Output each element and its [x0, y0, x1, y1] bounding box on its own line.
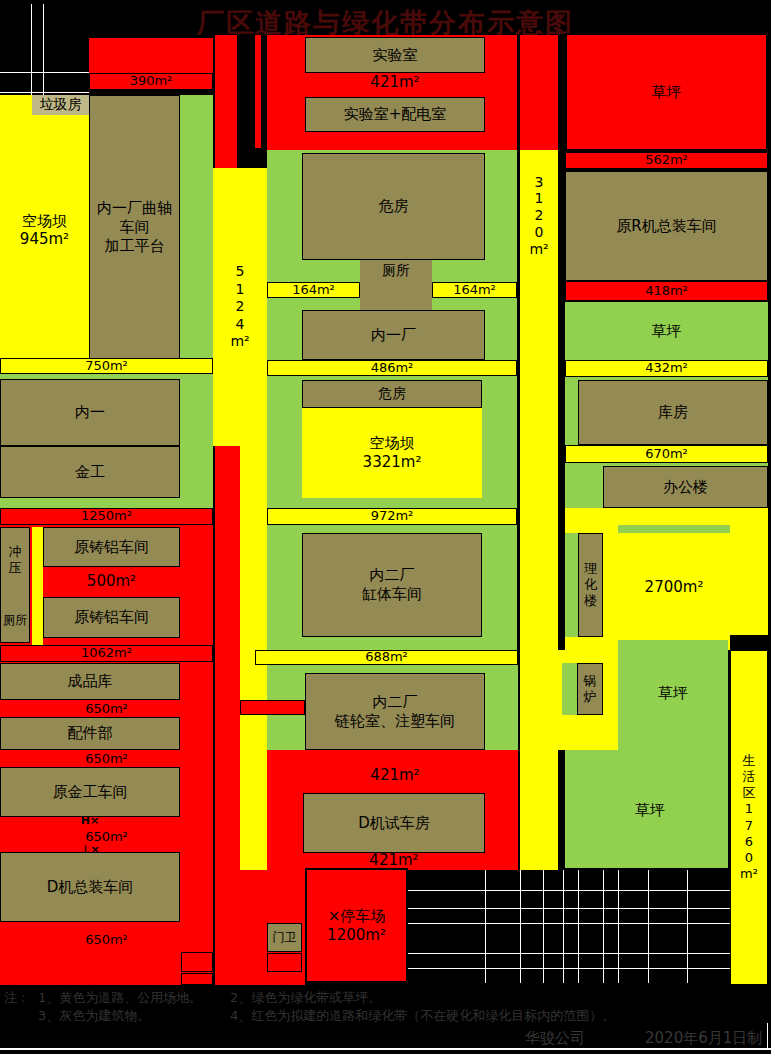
building-office: 办公楼: [603, 466, 768, 508]
border-line: [0, 1048, 771, 1050]
planned-lawn-area: 草坪: [565, 33, 768, 151]
open-yard-label: 空场坝 945m²: [0, 200, 89, 260]
road-strip-418: 418m²: [565, 281, 768, 301]
road-strip-562: 562m²: [565, 152, 768, 169]
grid-line: [687, 870, 688, 983]
site-layout-diagram: 厂区道路与绿化带分布示意图 390m² 空场坝 945m² 垃圾房 内一厂曲轴 …: [0, 0, 771, 1054]
road-strip-1250: 1250m²: [0, 508, 213, 525]
note-item-4: 4、红色为拟建的道路和绿化带（不在硬化和绿化目标内的范围）。: [230, 1007, 615, 1025]
footer-date: 2020年6月1日制: [645, 1029, 762, 1048]
greenbelt-area: [180, 95, 213, 360]
grid-line: [578, 870, 579, 983]
road-421-lower-label: 421m²: [303, 852, 485, 868]
building-metalwork: 原金工车间: [0, 767, 180, 817]
planned-road-area: [255, 35, 261, 148]
road-strip-164-left: 164m²: [267, 282, 360, 298]
border-line: [767, 1023, 768, 1050]
road-5124: 5 1 2 4 m²: [213, 168, 267, 446]
building-cylinder-workshop: 内二厂 缸体车间: [302, 533, 482, 637]
grid-line: [408, 923, 730, 924]
survey-mark-top: H×: [0, 815, 180, 827]
building-boiler: 锅 炉: [577, 663, 603, 715]
road-2700-label: 2700m²: [618, 576, 730, 598]
road-strip-486: 486m²: [267, 360, 517, 376]
road-650-label-2: 650m²: [0, 751, 213, 766]
greenbelt-sliver: [562, 663, 577, 715]
note-item-3: 3、灰色为建筑物。: [38, 1007, 150, 1025]
note-item-1: 1、黄色为道路、公用场地。: [38, 989, 202, 1007]
parking-lot: ×停车场 1200m²: [305, 868, 408, 983]
grid-line: [408, 908, 730, 909]
grid-line: [603, 870, 604, 983]
road-line: [0, 92, 89, 93]
planned-road-area: [520, 35, 558, 150]
building-plant-one: 内一厂: [302, 310, 485, 360]
small-planned-box: [181, 952, 213, 972]
road-strip-164-right: 164m²: [432, 282, 517, 298]
small-planned-box: [181, 973, 213, 985]
planned-road-stub: [240, 700, 305, 715]
footer-company: 华骏公司: [525, 1029, 585, 1048]
grid-line: [618, 870, 619, 983]
greenbelt-sliver: [565, 533, 578, 637]
small-planned-box: [267, 953, 302, 972]
grid-line: [563, 870, 564, 983]
grid-area: [408, 870, 730, 983]
building-physchem: 理 化 楼: [578, 533, 603, 637]
grid-line: [408, 968, 730, 969]
road-strip-688: 688m²: [255, 650, 518, 665]
building-parts-dept: 配件部: [0, 717, 180, 750]
road-650-label-4: 650m²: [0, 932, 213, 947]
road-strip-432: 432m²: [565, 360, 768, 377]
road-line: [31, 4, 32, 95]
road-line: [43, 4, 44, 95]
building-d-assembly: D机总装车间: [0, 852, 180, 922]
toilet-label: 厕所: [360, 261, 432, 279]
lawn-area: 草坪: [565, 302, 768, 360]
open-yard-3321: 空场坝 3321m²: [302, 408, 482, 498]
lawn-lower-label: 草坪: [600, 800, 700, 820]
building-d-test-house: D机试车房: [303, 793, 485, 853]
building-dilapidated-house: 危房: [302, 153, 485, 260]
road-strip-670: 670m²: [565, 445, 768, 463]
greenbelt-strip: [618, 525, 730, 533]
building-laboratory: 实验室: [305, 37, 485, 73]
road-strip-972: 972m²: [267, 508, 517, 525]
building-crankshaft-workshop: 内一厂曲轴 车间 加工平台: [89, 95, 180, 360]
planned-road-area: [215, 446, 240, 985]
road-strip-1062: 1062m²: [0, 645, 213, 662]
notes-prefix: 注：: [4, 989, 30, 1007]
background-gap: [730, 635, 768, 650]
planned-road-area: [89, 38, 213, 73]
toilet-label: 厕所: [0, 607, 30, 633]
building-jin-gong: 金工: [0, 446, 180, 498]
note-item-2: 2、绿色为绿化带或草坪。: [230, 989, 381, 1007]
building-dilapidated-house-2: 危房: [302, 380, 482, 408]
stamping-label: 冲 压: [0, 535, 30, 585]
trash-room: 垃圾房: [32, 95, 89, 115]
planned-road-area: [215, 35, 237, 168]
road-strip-390: 390m²: [89, 73, 213, 90]
road-strip-750: 750m²: [0, 358, 213, 374]
lawn-upper-label: 草坪: [628, 683, 718, 703]
grid-line: [485, 870, 486, 983]
road-650-label-1: 650m²: [0, 701, 213, 716]
building-cast-aluminum-2: 原铸铝车间: [43, 597, 180, 638]
road-500-label: 500m²: [43, 568, 180, 594]
road-421-label: 421m²: [305, 72, 485, 92]
grid-line: [520, 870, 521, 983]
living-area-strip: 生 活 区 1 7 6 0 m²: [730, 650, 768, 985]
road-3120-label: 3 1 2 0 m²: [520, 168, 558, 263]
road-area: [32, 527, 43, 645]
building-cast-aluminum-1: 原铸铝车间: [43, 527, 180, 567]
planned-road-area: [240, 870, 267, 985]
grid-line: [648, 870, 649, 983]
road-650-label-3: 650m²: [0, 829, 213, 844]
building-nei-yi: 内一: [0, 379, 180, 446]
building-r-machine-assembly: 原R机总装车间: [565, 171, 768, 281]
building-warehouse: 库房: [578, 380, 768, 445]
road-421-upper-label: 421m²: [305, 766, 485, 784]
building-gatehouse: 门卫: [267, 923, 302, 952]
building-sprocket-workshop: 内二厂 链轮室、注塑车间: [305, 673, 485, 750]
building-finished-goods: 成品库: [0, 663, 180, 700]
grid-line: [408, 890, 730, 891]
grid-line: [408, 953, 730, 954]
road-line: [0, 72, 89, 73]
grid-line: [543, 870, 544, 983]
building-lab-power-room: 实验室+配电室: [305, 97, 485, 132]
